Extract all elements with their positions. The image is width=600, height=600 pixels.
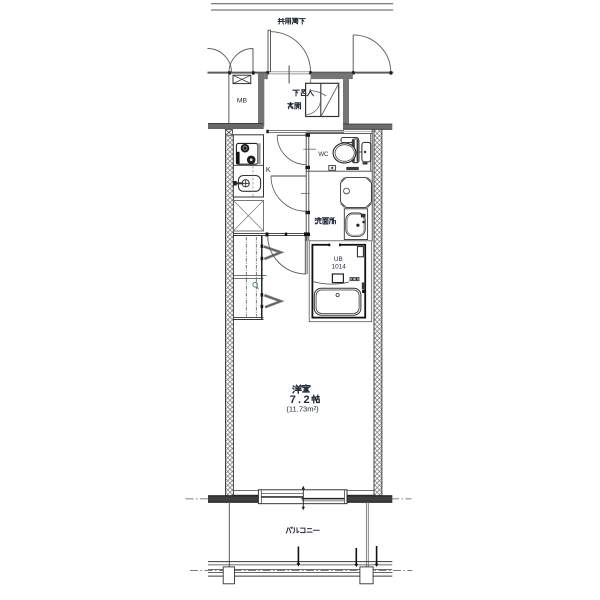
- svg-text:UB: UB: [334, 256, 343, 263]
- svg-text:(11.73m²): (11.73m²): [286, 405, 319, 414]
- svg-text:K: K: [266, 165, 271, 174]
- svg-text:WC: WC: [318, 152, 329, 158]
- svg-text:MB: MB: [237, 98, 248, 105]
- svg-text:1014: 1014: [332, 263, 347, 270]
